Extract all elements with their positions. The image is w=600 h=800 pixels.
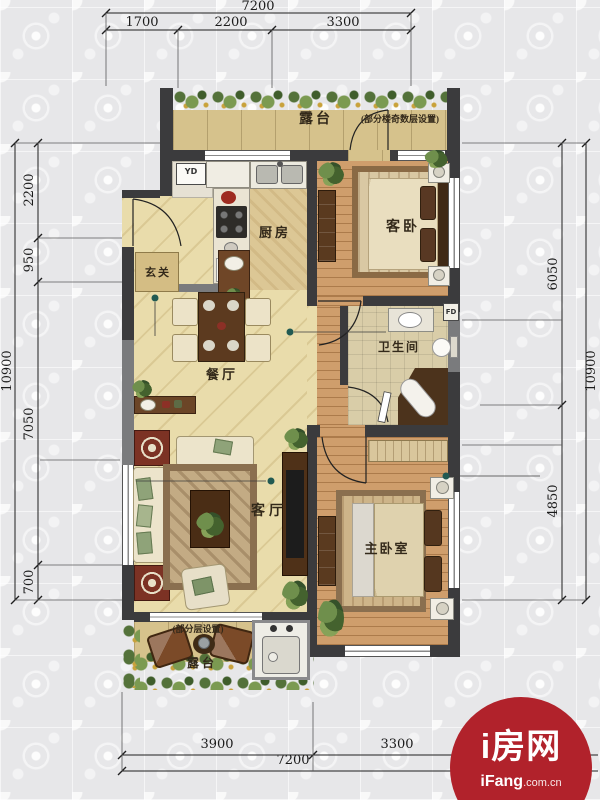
- master-door-threshold: [320, 425, 365, 437]
- wall: [390, 150, 398, 161]
- sofa-pillow: [136, 531, 153, 554]
- wall: [307, 150, 317, 306]
- potted-plant: [282, 580, 308, 610]
- dim-top-seg2: 2200: [201, 16, 261, 30]
- plate: [227, 340, 239, 351]
- dim-left-seg4: 700: [23, 552, 37, 612]
- lamp: [436, 602, 449, 615]
- headboard: [438, 178, 448, 270]
- window: [205, 150, 290, 161]
- wall: [122, 247, 134, 340]
- bench-pillow: [213, 439, 233, 456]
- room-label-kitchen: 厨房: [246, 222, 304, 241]
- table-plant: [196, 512, 224, 538]
- dim-bottom-total: 7200: [263, 754, 323, 768]
- cooking-pot: [221, 191, 236, 204]
- lamp: [433, 269, 445, 281]
- dining-chair: [172, 334, 198, 362]
- potted-plant: [424, 150, 448, 168]
- decor-sphere: [198, 637, 210, 649]
- dim-left-seg2: 950: [23, 230, 37, 290]
- pillow: [424, 510, 442, 546]
- table-decor: [217, 322, 226, 330]
- lamp: [436, 481, 449, 494]
- room-label-living: 客厅: [240, 500, 298, 520]
- sink-basin: [256, 165, 278, 184]
- pillow: [424, 556, 442, 592]
- dim-left-seg1: 2200: [23, 160, 37, 220]
- wall: [448, 372, 460, 492]
- potted-plant: [284, 428, 308, 450]
- room-note-terrace-top: (部分楼奇数层设置): [344, 112, 456, 125]
- dresser: [318, 516, 336, 586]
- dim-top-seg3: 3300: [313, 16, 373, 30]
- wall: [340, 306, 348, 385]
- plate: [203, 340, 215, 351]
- dim-bottom-seg2: 3300: [367, 738, 427, 752]
- decor-plate: [224, 256, 244, 271]
- wall: [160, 88, 173, 150]
- dim-top-total: 7200: [228, 0, 288, 14]
- window: [448, 178, 460, 268]
- room-label-master-bedroom: 主卧室: [354, 538, 420, 557]
- dim-right-total: 10900: [585, 341, 599, 401]
- vent-dot: [286, 625, 293, 632]
- watermark-site-suffix: .com.cn: [523, 777, 562, 789]
- sink-basin: [281, 165, 303, 184]
- terrace-sliding-door: [150, 612, 262, 622]
- watermark-site: iFang.com.cn: [450, 773, 592, 791]
- potted-plant: [132, 380, 152, 398]
- wardrobe: [318, 190, 336, 262]
- stove: [216, 206, 247, 238]
- floor-plan-image: YD: [0, 0, 600, 800]
- wall: [430, 645, 460, 657]
- washbasin: [398, 312, 422, 328]
- meter-box-label: YD: [178, 167, 204, 176]
- room-label-guest-bedroom: 客卧: [374, 216, 432, 236]
- room-label-dining: 餐厅: [194, 364, 250, 383]
- wall: [160, 161, 172, 196]
- dim-left-seg3: 7050: [23, 394, 37, 454]
- dim-right-seg2: 4850: [547, 471, 561, 531]
- room-label-entry: 玄关: [136, 264, 180, 280]
- wall: [122, 190, 160, 198]
- toilet: [432, 338, 451, 357]
- sofa-pillow: [136, 477, 154, 501]
- wardrobe: [368, 440, 448, 462]
- window: [448, 492, 460, 588]
- potted-plant: [318, 162, 344, 186]
- dim-left-total: 10900: [1, 341, 15, 401]
- wall: [122, 340, 134, 465]
- dining-hall-opening: [307, 306, 317, 425]
- plate: [203, 300, 215, 311]
- terrace-plants: [122, 622, 140, 688]
- watermark-site-bold: iFang: [480, 773, 523, 790]
- toilet-tank: [450, 336, 458, 358]
- dining-chair: [172, 298, 198, 326]
- kitchen-counter: [206, 161, 250, 188]
- entry-door-threshold: [122, 198, 134, 247]
- plate: [227, 300, 239, 311]
- terrace-door-threshold: [348, 150, 390, 161]
- hallway-floor: [317, 306, 340, 425]
- wall: [290, 150, 348, 161]
- wall: [317, 425, 320, 437]
- watermark-brand: i房网: [450, 727, 592, 767]
- bathroom-door-threshold: [340, 385, 348, 425]
- room-label-bathroom: 卫生间: [364, 338, 434, 355]
- guest-door-threshold: [317, 296, 363, 306]
- dim-top-seg1: 1700: [112, 16, 172, 30]
- dining-chair: [245, 334, 271, 362]
- room-label-terrace-bottom: 露台: [178, 654, 226, 671]
- faucet: [277, 161, 283, 167]
- room-label-terrace-top: 露台: [290, 108, 342, 128]
- pillow: [420, 186, 436, 220]
- dim-right-seg1: 6050: [547, 244, 561, 304]
- dining-chair: [245, 298, 271, 326]
- dim-bottom-seg1: 3900: [187, 738, 247, 752]
- decor-plate: [140, 399, 156, 411]
- armchair: [134, 430, 170, 466]
- vent-dot: [270, 625, 277, 632]
- wall: [122, 565, 134, 620]
- wall: [160, 150, 205, 161]
- room-note-terrace-bottom: (部分层设置): [146, 622, 250, 635]
- wall: [134, 612, 150, 622]
- machine-dial: [268, 652, 278, 662]
- decor-item: [174, 400, 182, 408]
- sofa-pillow: [136, 504, 153, 527]
- equipment-box-label: FD: [443, 308, 459, 316]
- potted-plant: [318, 598, 344, 638]
- wall: [365, 425, 460, 437]
- window: [345, 645, 430, 657]
- decor-item: [162, 401, 170, 408]
